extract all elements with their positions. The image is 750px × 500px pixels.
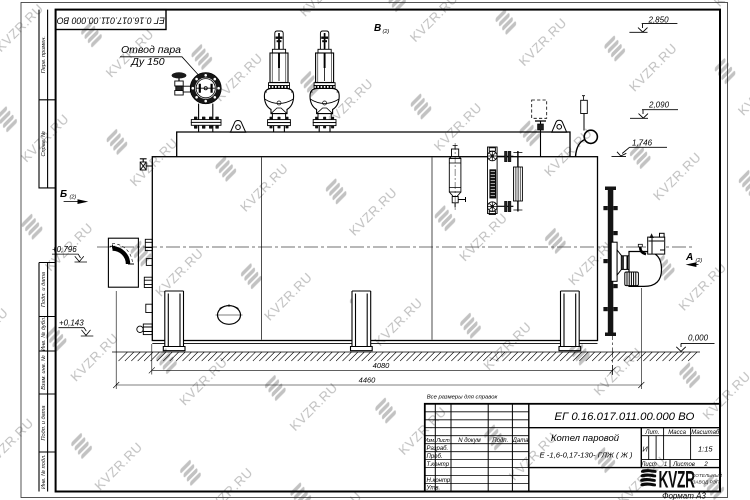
svg-text:Лит.: Лит. [644,430,659,436]
svg-text:4460: 4460 [359,376,377,385]
svg-text:И: И [642,445,648,454]
svg-text:2,090: 2,090 [648,101,670,110]
svg-text:1:15: 1:15 [698,445,713,454]
svg-text:В: В [374,23,381,34]
svg-text:+0,796: +0,796 [52,245,77,254]
svg-text:0,000: 0,000 [688,333,709,342]
svg-text:(2): (2) [383,29,390,35]
svg-text:Справ. №: Справ. № [41,131,47,156]
svg-text:Перв. примен.: Перв. примен. [41,36,47,73]
svg-text:ЗАВОД РЭП: ЗАВОД РЭП [693,480,720,485]
svg-text:N докум: N докум [458,438,481,444]
svg-text:А: А [685,252,693,263]
svg-text:ЕГ 0.16.017.011.00.000 ВО: ЕГ 0.16.017.011.00.000 ВО [57,16,165,26]
svg-text:Б: Б [60,189,67,200]
svg-text:Подп. и дата: Подп. и дата [41,272,47,307]
svg-text:2: 2 [703,462,708,468]
svg-text:Изм.: Изм. [424,438,435,444]
svg-text:Утв.: Утв. [426,486,441,492]
svg-text:1,746: 1,746 [632,138,653,147]
svg-text:Подп.: Подп. [492,438,508,444]
svg-text:Дата: Дата [512,438,529,444]
svg-text:Проб.: Проб. [427,454,443,460]
svg-text:Взам. инв. №: Взам. инв. № [41,355,47,390]
svg-text:Ду 150: Ду 150 [130,56,164,68]
svg-text:+0,143: +0,143 [59,319,84,328]
svg-text:Котел паровой: Котел паровой [551,433,620,444]
svg-text:Инв. № подл.: Инв. № подл. [41,454,47,489]
svg-text:Инв. № дубл.: Инв. № дубл. [41,316,47,350]
svg-text:Е -1,6-0,17-130- ГЛЖ ( Ж ): Е -1,6-0,17-130- ГЛЖ ( Ж ) [540,450,633,459]
svg-text:4080: 4080 [373,361,391,370]
svg-text:Масштаб: Масштаб [691,430,720,436]
svg-text:Разраб.: Разраб. [427,446,449,452]
svg-text:Подп. и дата: Подп. и дата [41,405,47,440]
svg-text:Отвод пара: Отвод пара [121,44,181,56]
svg-text:Н.контр: Н.контр [427,478,451,484]
svg-text:Лист: Лист [435,438,450,444]
svg-text:Т.контр: Т.контр [427,462,450,468]
svg-text:ЕГ 0.16.017.011.00.000 ВО: ЕГ 0.16.017.011.00.000 ВО [554,411,694,423]
svg-text:Масса: Масса [668,430,686,436]
svg-text:Лист: Лист [640,462,656,468]
svg-text:КОТЕЛЬНЫЙ: КОТЕЛЬНЫЙ [693,471,723,478]
svg-text:KVZR: KVZR [659,466,695,493]
svg-text:Все размеры для справок: Все размеры для справок [427,395,498,401]
svg-text:(2): (2) [696,258,703,264]
svg-text:(2): (2) [70,195,77,201]
